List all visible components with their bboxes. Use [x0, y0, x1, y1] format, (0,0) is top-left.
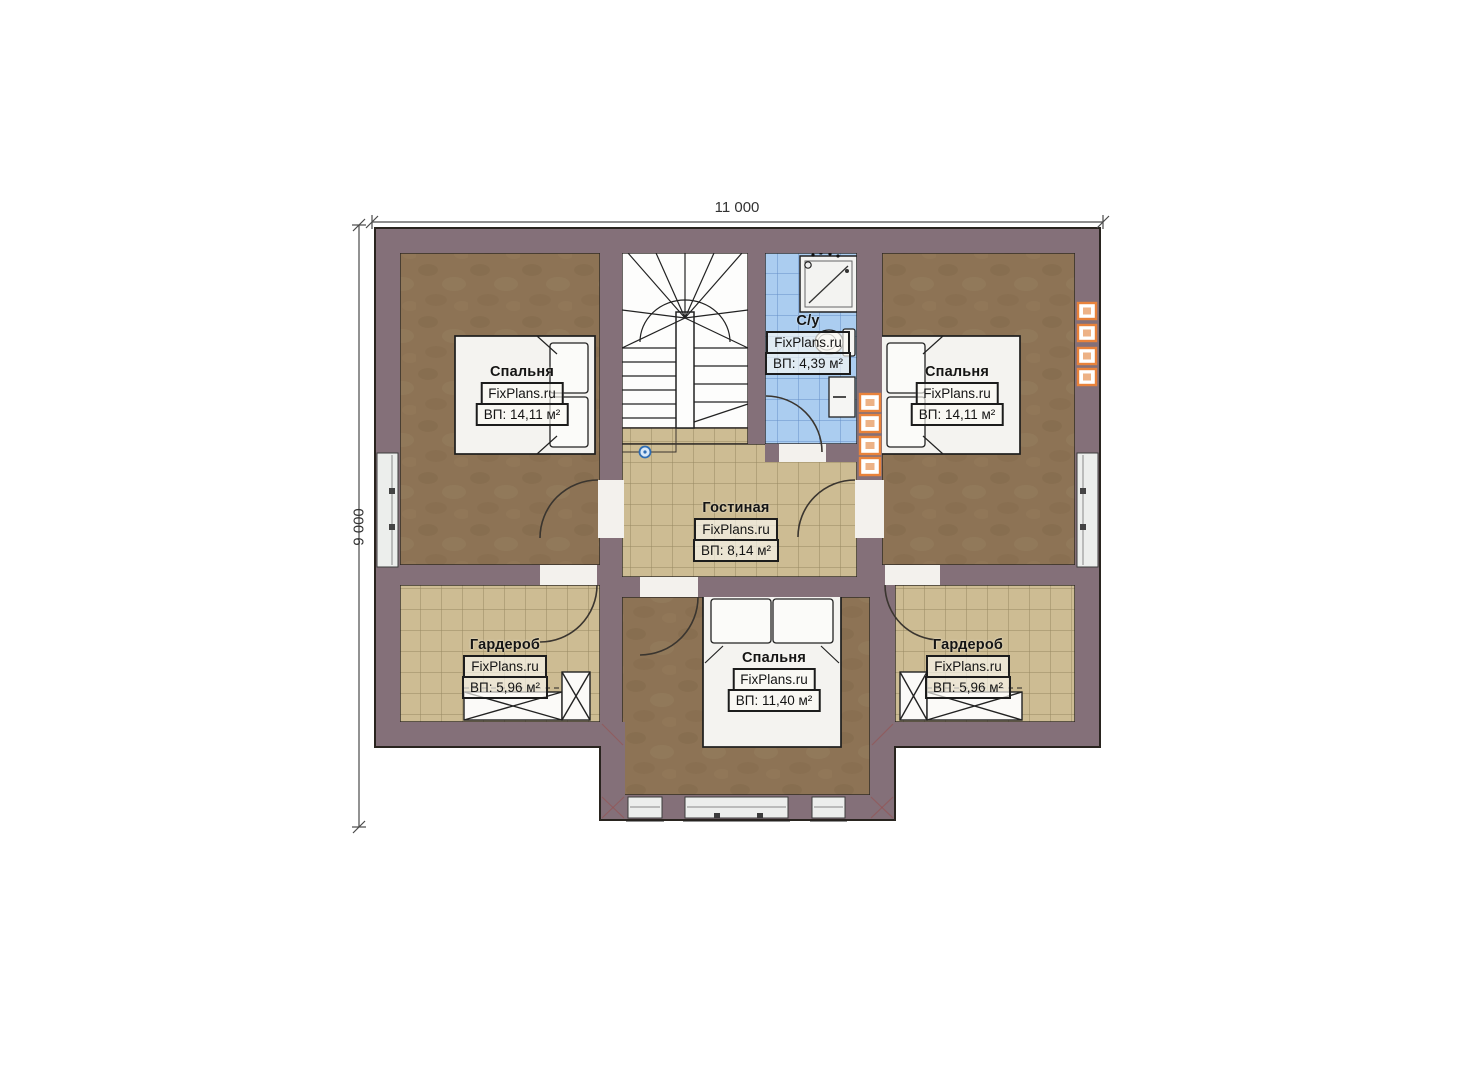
window-right-wall — [1077, 453, 1098, 567]
brand-badge: FixPlans.ru — [480, 382, 564, 405]
wall — [870, 722, 1100, 747]
room-label-bathroom: С/у FixPlans.ru ВП: 4,39 м² — [765, 313, 851, 375]
door-opening — [640, 577, 698, 597]
door-opening — [540, 565, 597, 585]
window-left-wall — [377, 453, 398, 567]
door-opening — [855, 480, 884, 538]
room-area: ВП: 4,39 м² — [765, 352, 851, 375]
door-opening — [779, 444, 826, 462]
wall — [600, 747, 625, 795]
door-opening — [598, 480, 624, 538]
room-name: Спальня — [911, 364, 1004, 380]
room-name: Гостиная — [693, 500, 779, 516]
wall — [375, 228, 1100, 253]
wall — [748, 253, 765, 444]
shower-icon — [800, 251, 857, 312]
floor-hall-strip — [622, 428, 748, 444]
room-name: С/у — [765, 313, 851, 329]
dimension-width-label: 11 000 — [715, 199, 760, 216]
floor-plan: 11 000 9 000 Спальня FixPlans.ru ВП: 14,… — [0, 0, 1473, 1080]
brand-badge: FixPlans.ru — [732, 668, 816, 691]
room-name: Гардероб — [925, 637, 1011, 653]
room-name: Спальня — [728, 650, 821, 666]
room-area: ВП: 5,96 м² — [925, 676, 1011, 699]
room-area: ВП: 14,11 м² — [911, 403, 1004, 426]
room-label-wardrobe-right: Гардероб FixPlans.ru ВП: 5,96 м² — [925, 637, 1011, 699]
room-label-bedroom-left: Спальня FixPlans.ru ВП: 14,11 м² — [476, 364, 569, 426]
door-opening — [885, 565, 940, 585]
sink-cabinet-icon — [829, 377, 855, 417]
wall — [870, 577, 895, 722]
brand-badge: FixPlans.ru — [915, 382, 999, 405]
room-area: ВП: 8,14 м² — [693, 539, 779, 562]
wall — [870, 747, 895, 795]
brand-badge: FixPlans.ru — [463, 655, 547, 678]
dimension-height-label: 9 000 — [351, 508, 368, 546]
wall — [375, 722, 625, 747]
level-marker-icon — [640, 447, 651, 458]
room-label-bedroom-bottom: Спальня FixPlans.ru ВП: 11,40 м² — [728, 650, 821, 712]
room-name: Гардероб — [462, 637, 548, 653]
room-area: ВП: 14,11 м² — [476, 403, 569, 426]
room-area: ВП: 5,96 м² — [462, 676, 548, 699]
room-name: Спальня — [476, 364, 569, 380]
windows-bottom-wall — [626, 797, 847, 821]
room-area: ВП: 11,40 м² — [728, 689, 821, 712]
room-label-wardrobe-left: Гардероб FixPlans.ru ВП: 5,96 м² — [462, 637, 548, 699]
brand-badge: FixPlans.ru — [694, 518, 778, 541]
room-label-living-room: Гостиная FixPlans.ru ВП: 8,14 м² — [693, 500, 779, 562]
brand-badge: FixPlans.ru — [766, 331, 850, 354]
room-label-bedroom-right: Спальня FixPlans.ru ВП: 14,11 м² — [911, 364, 1004, 426]
brand-badge: FixPlans.ru — [926, 655, 1010, 678]
